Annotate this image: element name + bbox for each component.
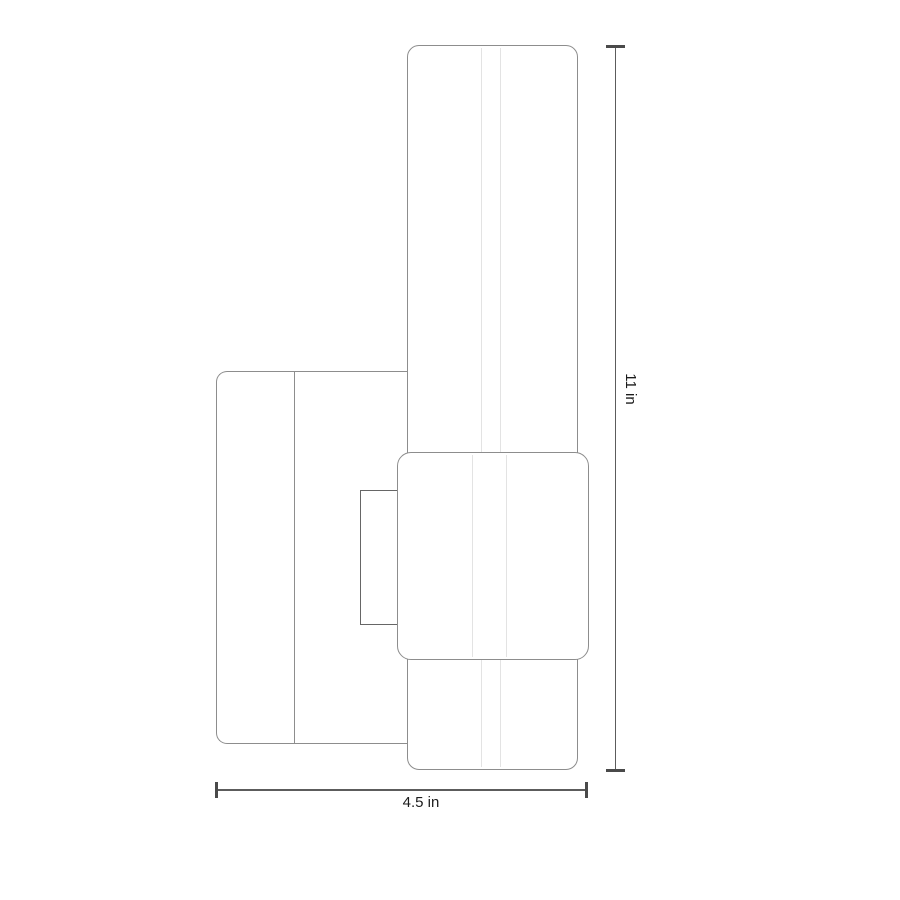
- width-dimension-tick-left: [215, 782, 218, 798]
- socket-band: [397, 452, 589, 660]
- width-dimension-tick-right: [585, 782, 588, 798]
- height-dimension-tick-bottom: [606, 769, 625, 772]
- height-dimension-label: 11 in: [621, 369, 639, 409]
- width-dimension-line: [216, 789, 587, 791]
- glass-tube: [407, 45, 578, 770]
- backplate-curve-line: [294, 372, 295, 743]
- sconce-dimension-diagram: 11 in 4.5 in: [0, 0, 900, 900]
- height-dimension-line: [615, 46, 616, 771]
- socket-highlight-line: [472, 455, 473, 657]
- mounting-bracket: [360, 490, 401, 625]
- socket-highlight-line: [506, 455, 507, 657]
- width-dimension-label: 4.5 in: [381, 794, 461, 812]
- height-dimension-tick-top: [606, 45, 625, 48]
